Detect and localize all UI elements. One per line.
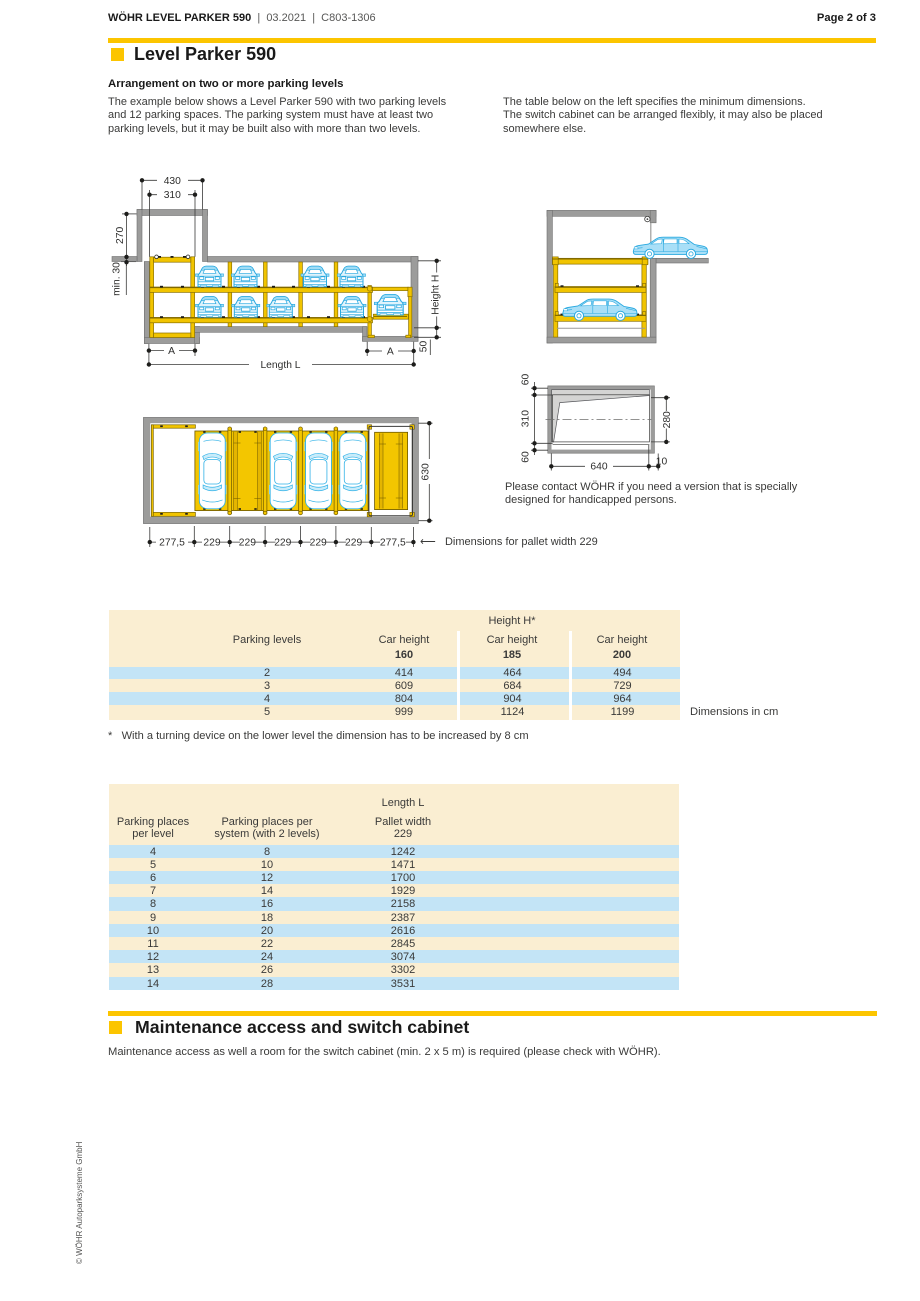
svg-text:310: 310 — [521, 410, 532, 427]
svg-text:640: 640 — [590, 462, 607, 473]
svg-text:50: 50 — [419, 341, 430, 353]
svg-text:Length L: Length L — [260, 360, 300, 371]
svg-text:229: 229 — [239, 538, 256, 549]
svg-text:229: 229 — [203, 538, 220, 549]
svg-text:60: 60 — [521, 374, 532, 386]
svg-text:280: 280 — [662, 411, 673, 428]
svg-text:277,5: 277,5 — [159, 538, 185, 549]
svg-text:Height H: Height H — [430, 275, 441, 315]
svg-text:630: 630 — [421, 463, 432, 480]
svg-text:277,5: 277,5 — [380, 538, 406, 549]
svg-text:229: 229 — [274, 538, 291, 549]
svg-text:min. 30: min. 30 — [112, 262, 123, 296]
svg-text:310: 310 — [164, 190, 181, 201]
svg-text:430: 430 — [164, 176, 181, 187]
svg-text:10: 10 — [656, 457, 668, 468]
svg-text:229: 229 — [310, 538, 327, 549]
svg-text:A: A — [387, 347, 394, 358]
svg-text:60: 60 — [521, 451, 532, 463]
svg-text:270: 270 — [115, 227, 126, 244]
svg-text:229: 229 — [345, 538, 362, 549]
svg-text:A: A — [168, 346, 175, 357]
